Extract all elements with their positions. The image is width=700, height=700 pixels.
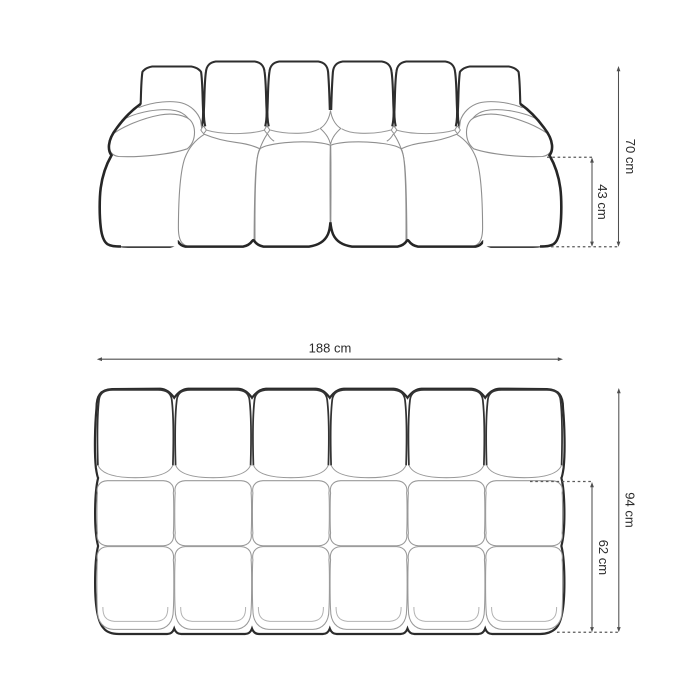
svg-text:94 cm: 94 cm [623,492,638,527]
svg-text:43 cm: 43 cm [595,184,610,219]
svg-text:62 cm: 62 cm [596,540,611,575]
svg-text:70 cm: 70 cm [623,139,638,174]
svg-text:188 cm: 188 cm [309,340,352,355]
